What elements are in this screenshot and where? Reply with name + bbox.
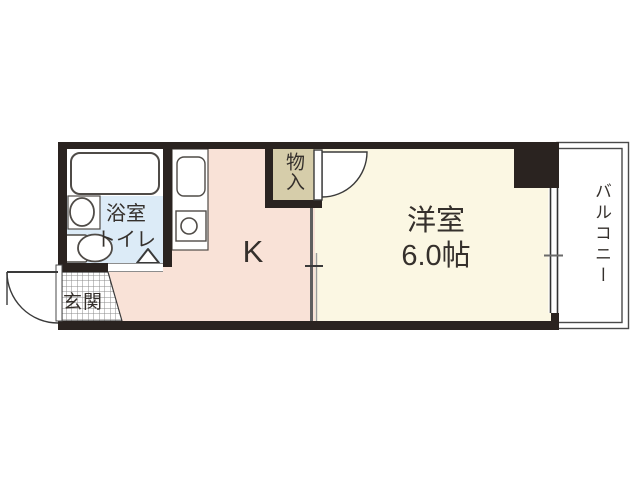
floorplan: 浴室 トイレ 玄関 K 物入 洋室 6.0帖 バルコニー [0,0,640,480]
sink-icon [177,157,205,196]
wall-storage-bottom [265,200,322,208]
kitchen-counter-icon [172,149,208,250]
stove-icon [176,211,206,241]
wall-storage-left [265,142,273,208]
western-room-label: 洋室 6.0帖 [366,204,506,274]
wall-left [58,142,67,265]
bathroom-label-line1: 浴室 [84,201,168,227]
wall-bathroom-bottom [58,263,108,272]
entrance-door-icon [7,265,62,323]
bathroom-label: 浴室 トイレ [84,201,168,253]
entrance-label: 玄関 [63,287,103,314]
western-room-name: 洋室 [366,204,506,239]
kitchen-label: K [237,234,269,270]
storage-label: 物入 [280,152,304,192]
bathtub-icon [71,153,159,194]
bathroom-label-line2: トイレ [84,227,168,253]
wall-window-stub [551,313,559,330]
wall-bottom [58,321,559,330]
wall-corner-block [514,142,559,188]
bathroom-door-opening [108,263,163,272]
wall-top [58,142,559,149]
balcony-label: バルコニー [592,182,614,287]
western-room-size: 6.0帖 [366,239,506,274]
